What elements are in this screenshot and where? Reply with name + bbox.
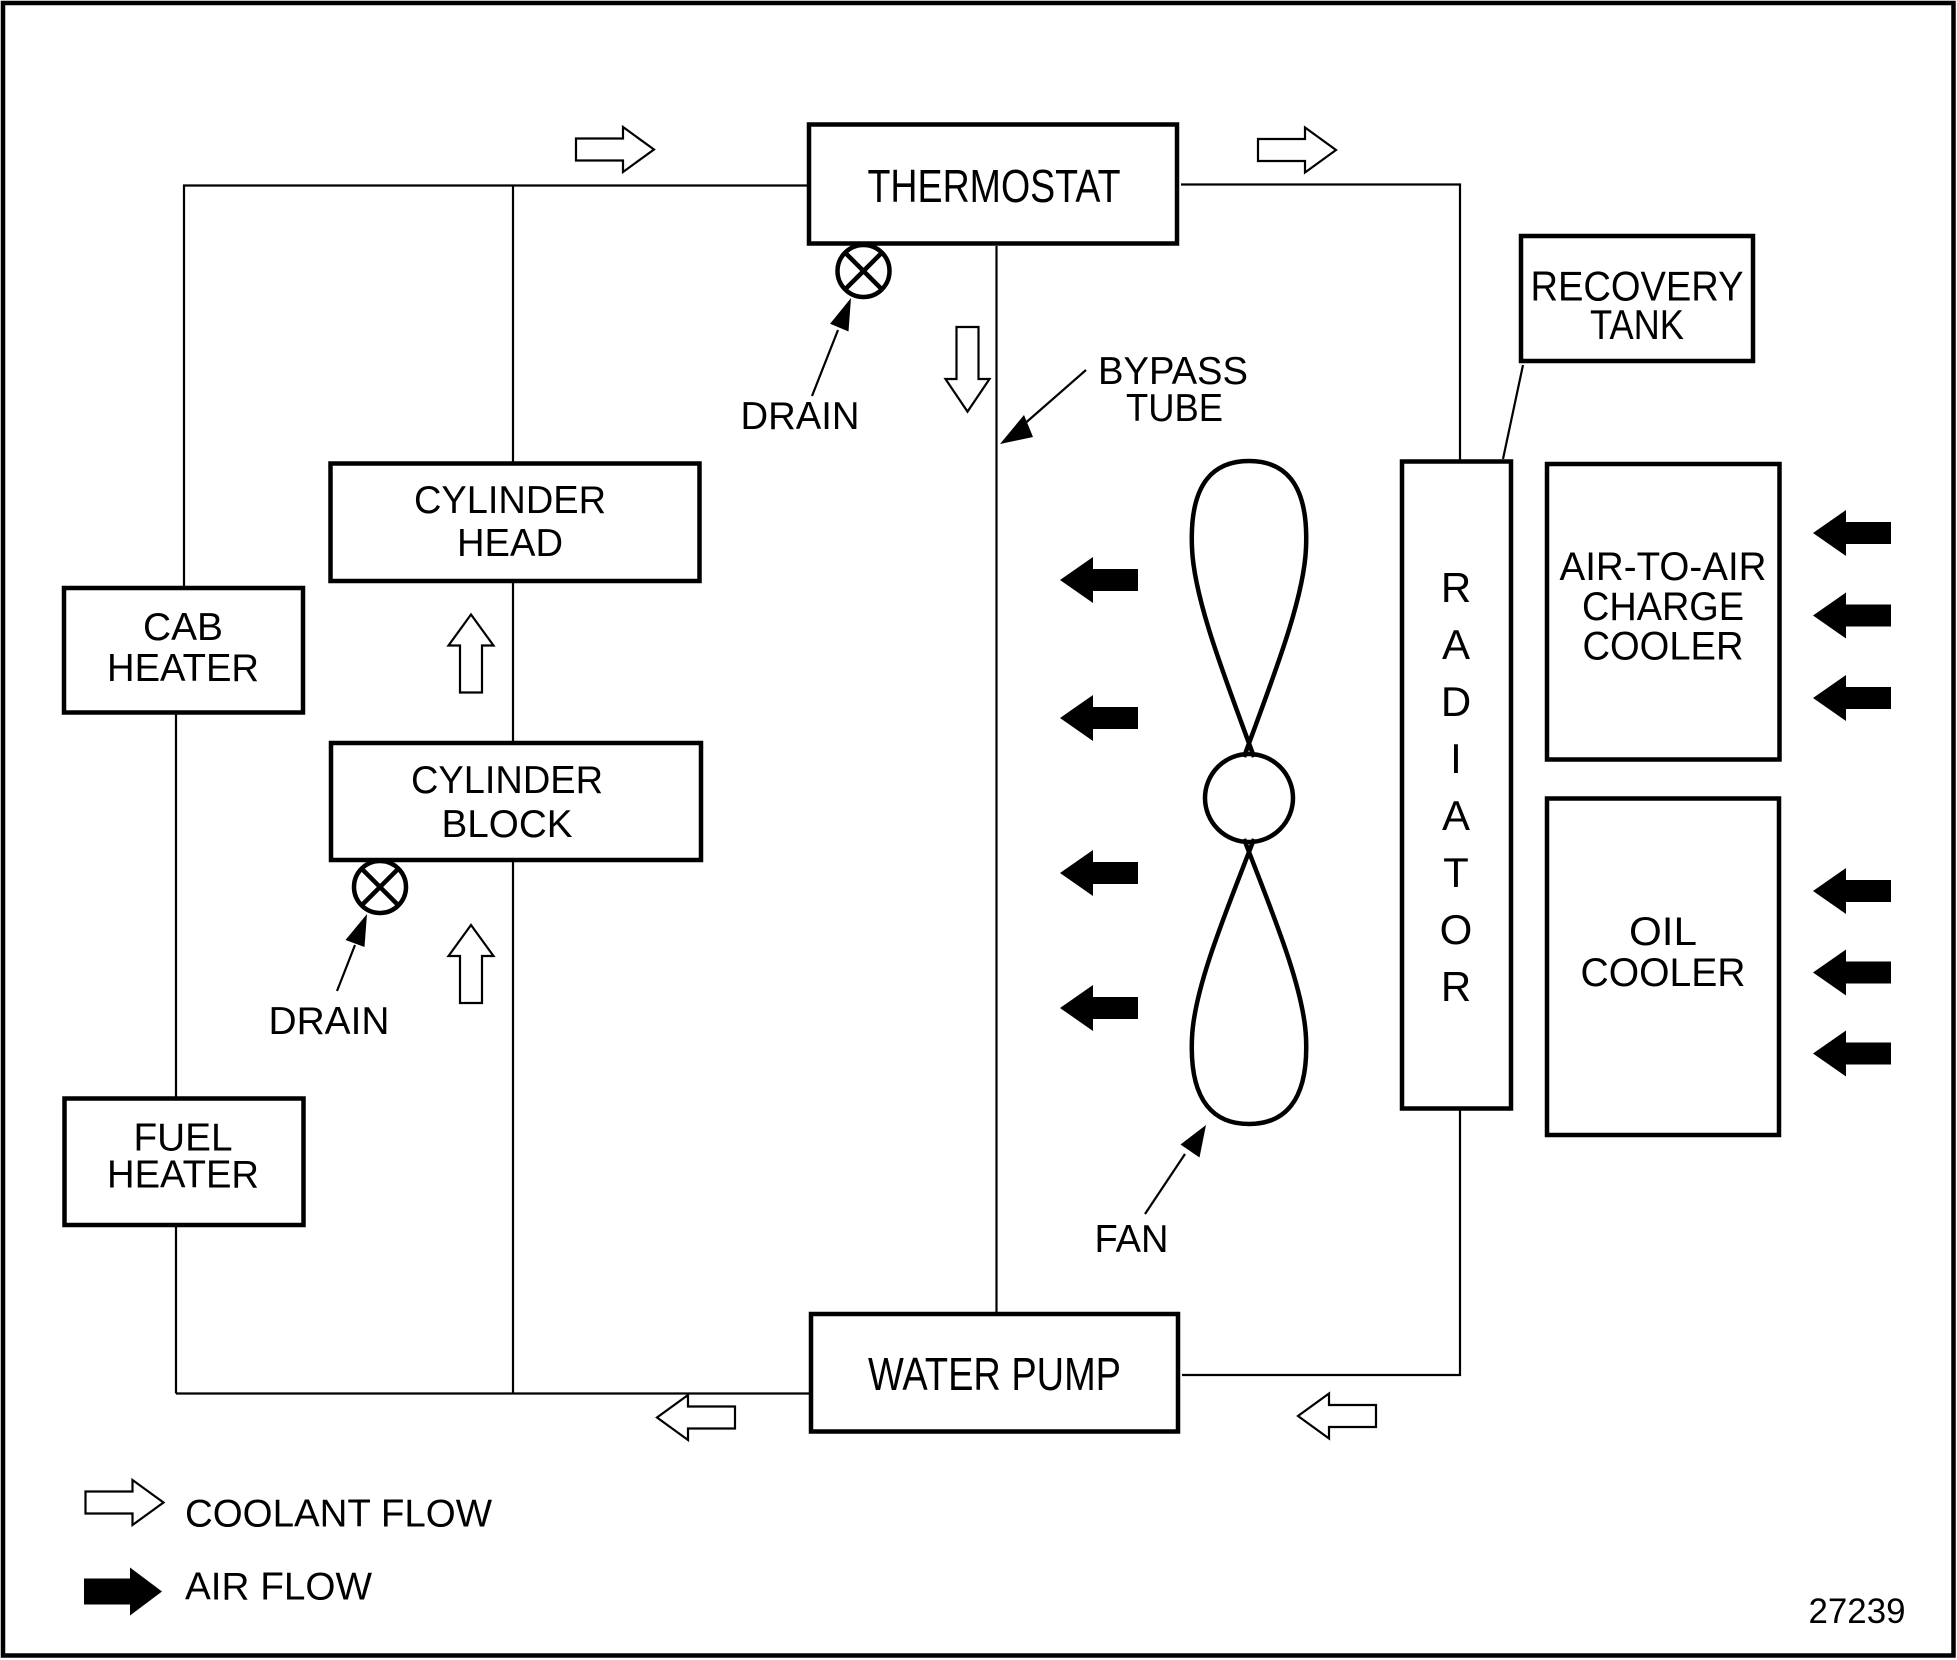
svg-text:DRAIN: DRAIN (741, 395, 860, 438)
svg-text:CYLINDER: CYLINDER (411, 759, 603, 802)
svg-text:HEATER: HEATER (107, 647, 259, 690)
svg-text:THERMOSTAT: THERMOSTAT (868, 160, 1121, 212)
svg-text:OIL: OIL (1629, 910, 1697, 954)
svg-text:A: A (1442, 621, 1470, 668)
svg-text:WATER PUMP: WATER PUMP (868, 1348, 1121, 1400)
svg-text:CAB: CAB (143, 606, 223, 649)
svg-text:R: R (1441, 963, 1471, 1010)
svg-text:AIR-TO-AIR: AIR-TO-AIR (1560, 545, 1767, 589)
svg-text:DRAIN: DRAIN (269, 1000, 390, 1043)
svg-text:COOLER: COOLER (1581, 951, 1746, 995)
svg-text:R: R (1441, 564, 1471, 611)
svg-text:A: A (1442, 792, 1470, 839)
svg-text:BLOCK: BLOCK (442, 803, 573, 846)
svg-text:HEATER: HEATER (107, 1154, 259, 1197)
svg-text:I: I (1450, 735, 1462, 782)
svg-text:COOLANT FLOW: COOLANT FLOW (185, 1493, 492, 1536)
svg-text:O: O (1440, 906, 1473, 953)
svg-text:HEAD: HEAD (457, 522, 563, 565)
svg-text:CYLINDER: CYLINDER (414, 479, 606, 522)
svg-text:TANK: TANK (1590, 301, 1684, 348)
svg-text:AIR FLOW: AIR FLOW (185, 1566, 372, 1609)
svg-text:27239: 27239 (1809, 1592, 1906, 1631)
svg-text:TUBE: TUBE (1126, 387, 1223, 430)
svg-text:T: T (1443, 849, 1469, 896)
svg-text:D: D (1441, 678, 1471, 725)
svg-text:COOLER: COOLER (1583, 625, 1744, 669)
svg-text:FAN: FAN (1095, 1218, 1169, 1261)
svg-text:CHARGE: CHARGE (1582, 585, 1744, 629)
